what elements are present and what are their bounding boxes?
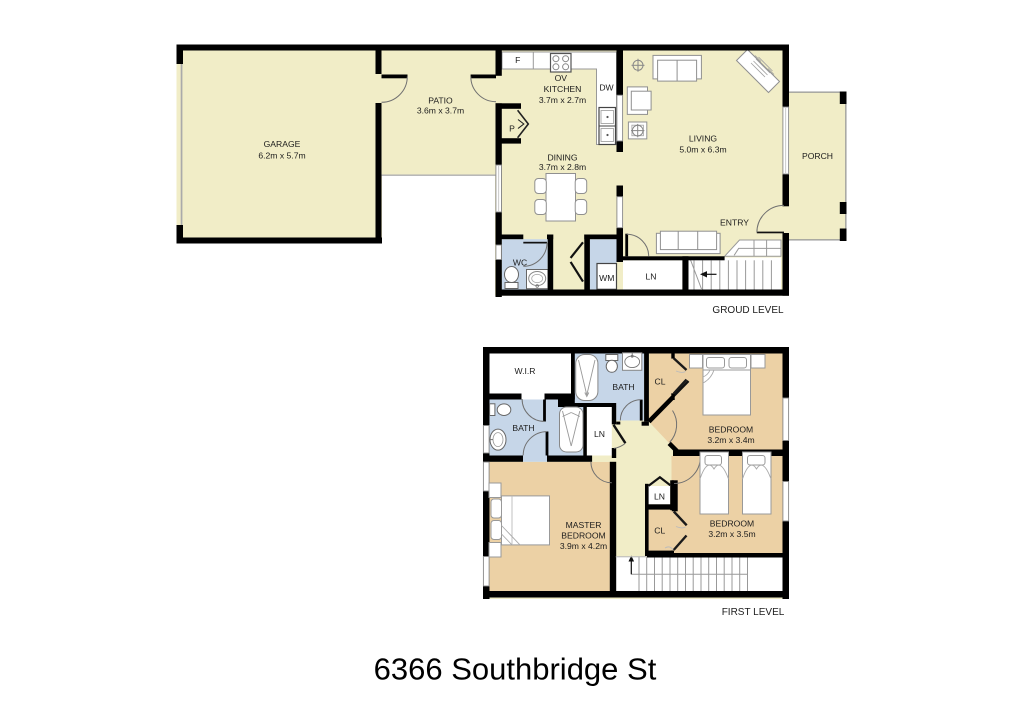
svg-text:OV: OV — [555, 73, 568, 83]
svg-text:5.0m x 6.3m: 5.0m x 6.3m — [679, 145, 726, 155]
svg-text:3.9m x 4.2m: 3.9m x 4.2m — [560, 541, 607, 551]
svg-text:BATH: BATH — [612, 382, 634, 392]
svg-text:BATH: BATH — [512, 423, 534, 433]
svg-text:ENTRY: ENTRY — [720, 218, 749, 228]
svg-text:DW: DW — [599, 83, 614, 93]
svg-text:BEDROOM: BEDROOM — [709, 425, 753, 435]
svg-text:WC: WC — [513, 258, 527, 268]
svg-text:W.I.R: W.I.R — [514, 366, 535, 376]
svg-text:CL: CL — [654, 526, 665, 536]
svg-text:GROUD LEVEL: GROUD LEVEL — [712, 305, 784, 316]
svg-text:3.6m x 3.7m: 3.6m x 3.7m — [417, 106, 464, 116]
svg-text:PORCH: PORCH — [802, 151, 833, 161]
svg-text:6366 Southbridge St: 6366 Southbridge St — [374, 652, 657, 687]
svg-text:LN: LN — [594, 429, 605, 439]
svg-text:3.2m x 3.4m: 3.2m x 3.4m — [707, 435, 754, 445]
svg-text:6.2m x 5.7m: 6.2m x 5.7m — [258, 151, 305, 161]
svg-text:CL: CL — [655, 377, 666, 387]
svg-text:P: P — [509, 124, 515, 134]
svg-text:KITCHEN: KITCHEN — [544, 84, 582, 94]
svg-text:FIRST LEVEL: FIRST LEVEL — [722, 607, 785, 618]
svg-text:BEDROOM: BEDROOM — [710, 519, 754, 529]
svg-text:DINING: DINING — [547, 152, 577, 162]
svg-text:GARAGE: GARAGE — [264, 139, 301, 149]
svg-text:PATIO: PATIO — [428, 96, 453, 106]
svg-text:F: F — [515, 55, 520, 65]
svg-text:LN: LN — [654, 492, 665, 502]
svg-text:LIVING: LIVING — [689, 134, 717, 144]
svg-text:LN: LN — [646, 272, 657, 282]
svg-text:MASTER: MASTER — [566, 520, 602, 530]
svg-text:3.7m x 2.7m: 3.7m x 2.7m — [539, 95, 586, 105]
svg-text:3.7m x 2.8m: 3.7m x 2.8m — [539, 162, 586, 172]
svg-text:WM: WM — [599, 273, 614, 283]
svg-text:3.2m x 3.5m: 3.2m x 3.5m — [708, 529, 755, 539]
svg-text:BEDROOM: BEDROOM — [561, 531, 605, 541]
